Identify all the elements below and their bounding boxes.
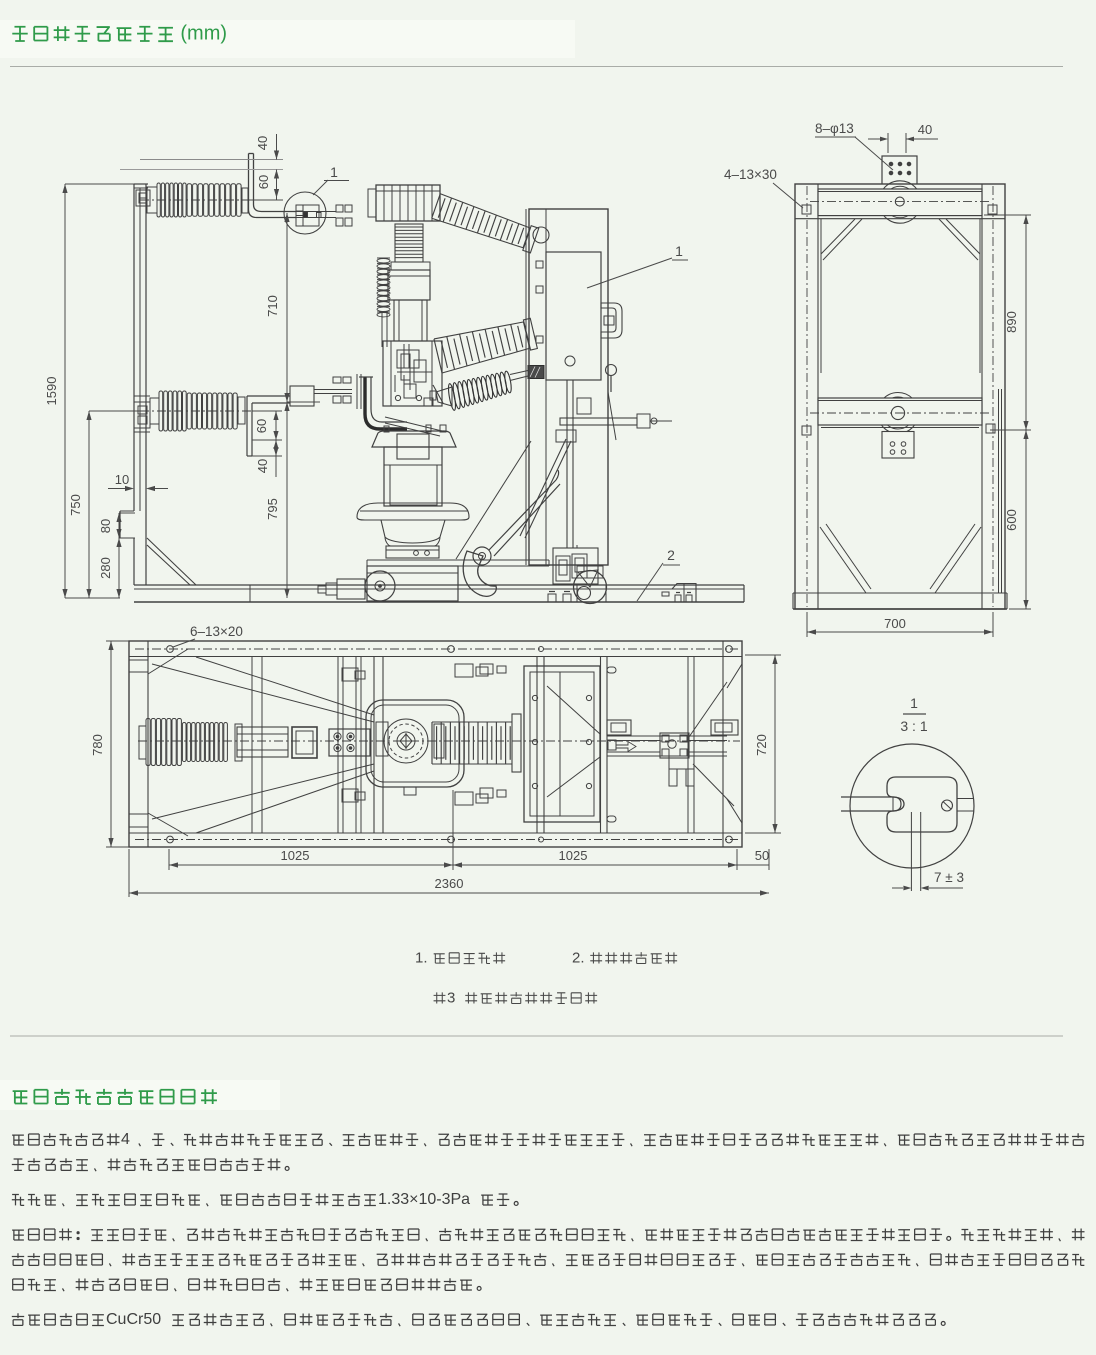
svg-text:750: 750 bbox=[68, 494, 83, 516]
svg-text:1: 1 bbox=[330, 164, 338, 180]
svg-text:3 : 1: 3 : 1 bbox=[900, 718, 927, 734]
svg-text:700: 700 bbox=[884, 616, 906, 631]
svg-text:10: 10 bbox=[115, 472, 129, 487]
svg-text:(mm): (mm) bbox=[180, 22, 227, 44]
svg-text:60: 60 bbox=[254, 419, 269, 433]
svg-text:3: 3 bbox=[447, 989, 455, 1006]
svg-text:4: 4 bbox=[121, 1131, 130, 1148]
svg-text:600: 600 bbox=[1004, 509, 1019, 531]
svg-text:280: 280 bbox=[98, 557, 113, 579]
svg-text:7 ± 3: 7 ± 3 bbox=[934, 870, 964, 885]
svg-text:1025: 1025 bbox=[559, 848, 588, 863]
svg-text:40: 40 bbox=[918, 122, 932, 137]
svg-text:720: 720 bbox=[754, 734, 769, 756]
svg-text:8–φ13: 8–φ13 bbox=[815, 121, 854, 136]
svg-text:CuCr50: CuCr50 bbox=[106, 1311, 161, 1328]
svg-text:795: 795 bbox=[265, 498, 280, 520]
svg-text:6–13×20: 6–13×20 bbox=[190, 624, 243, 639]
svg-text:2.: 2. bbox=[572, 949, 585, 966]
svg-text:890: 890 bbox=[1004, 311, 1019, 333]
svg-text:80: 80 bbox=[98, 519, 113, 533]
svg-text:1.33×10-3Pa: 1.33×10-3Pa bbox=[378, 1191, 470, 1208]
svg-text:40: 40 bbox=[255, 136, 270, 150]
svg-text:4–13×30: 4–13×30 bbox=[724, 167, 777, 182]
svg-text:710: 710 bbox=[265, 295, 280, 317]
svg-text:1025: 1025 bbox=[281, 848, 310, 863]
svg-text:1: 1 bbox=[910, 695, 918, 711]
svg-text:2: 2 bbox=[667, 547, 675, 563]
svg-text:60: 60 bbox=[256, 175, 271, 189]
svg-text:40: 40 bbox=[255, 459, 270, 473]
svg-text:1: 1 bbox=[675, 243, 683, 259]
svg-text:780: 780 bbox=[90, 734, 105, 756]
svg-text:50: 50 bbox=[755, 848, 769, 863]
svg-text:1590: 1590 bbox=[44, 377, 59, 406]
svg-text:2360: 2360 bbox=[435, 876, 464, 891]
svg-text:1.: 1. bbox=[415, 949, 428, 966]
